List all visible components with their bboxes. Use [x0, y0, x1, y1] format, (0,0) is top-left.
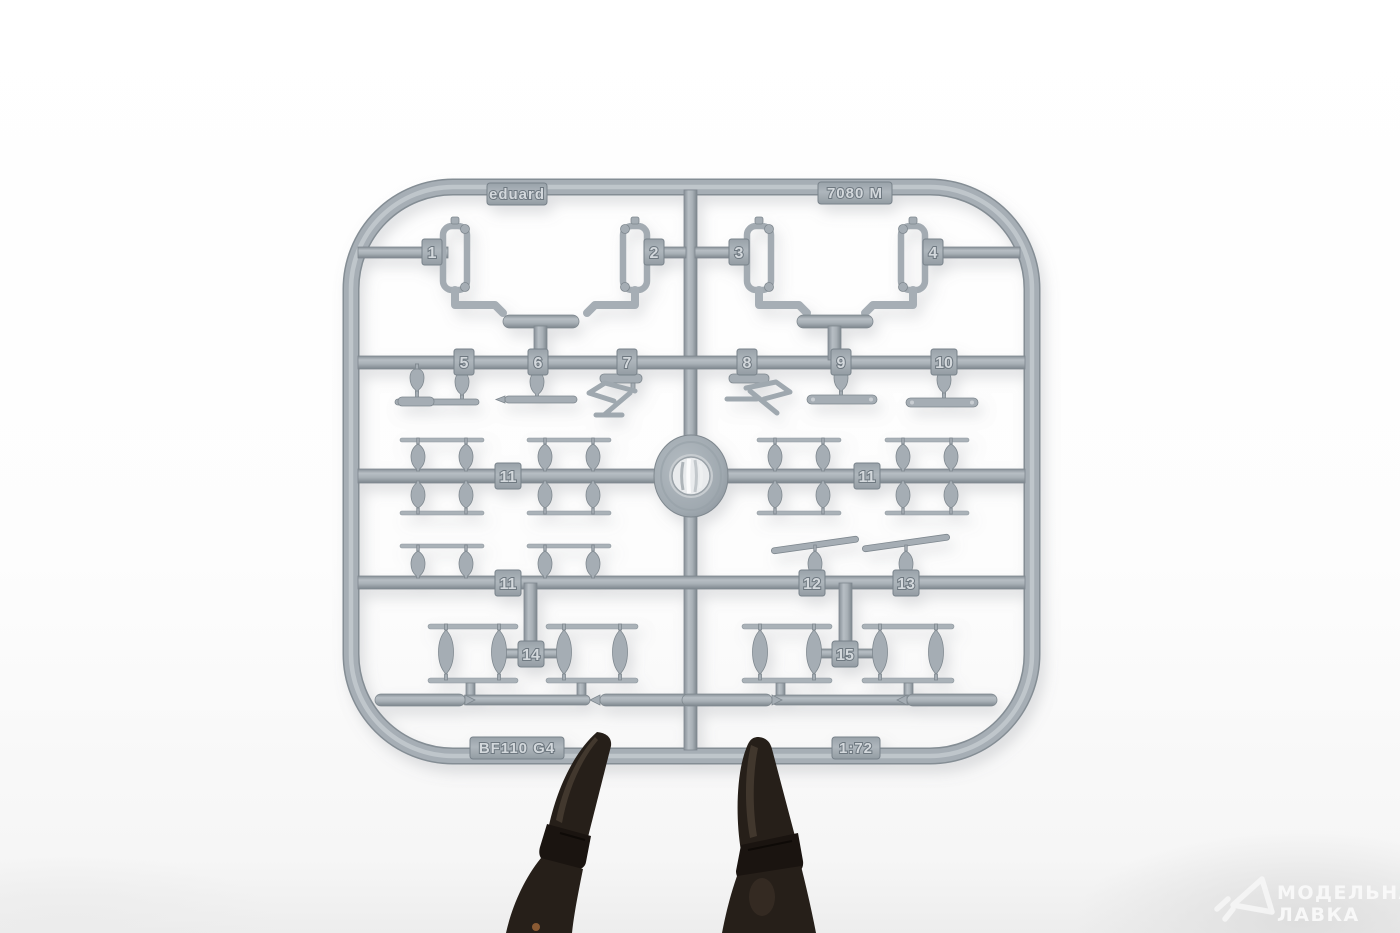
svg-text:11: 11: [500, 469, 517, 486]
watermark: МОДЕЛЬНАЯ ЛАВКА: [1217, 879, 1400, 926]
svg-text:13: 13: [897, 576, 915, 593]
sprue: eduard 7080 M BF110 G4 1:72: [351, 182, 1032, 759]
part-number-tab-6: 6: [528, 349, 548, 375]
part-number-tab-14: 14: [518, 641, 544, 667]
svg-text:5: 5: [460, 355, 469, 372]
svg-text:12: 12: [803, 576, 821, 593]
part-number-tab-12: 12: [799, 570, 825, 596]
svg-text:1: 1: [428, 245, 437, 262]
svg-text:9: 9: [837, 355, 846, 372]
part-number-tab-11b: 11: [854, 463, 880, 489]
svg-text:3: 3: [735, 245, 744, 262]
part-4-mast: [899, 217, 926, 292]
svg-text:8: 8: [743, 355, 752, 372]
part-number-tab-5: 5: [454, 349, 474, 375]
watermark-line1: МОДЕЛЬНАЯ: [1277, 882, 1400, 904]
svg-text:11: 11: [859, 469, 876, 486]
brand-tab-eduard: eduard: [487, 183, 547, 205]
sprue-photo: eduard 7080 M BF110 G4 1:72: [0, 0, 1400, 933]
photo-stage: eduard 7080 M BF110 G4 1:72: [0, 0, 1400, 933]
aircraft-label: BF110 G4: [479, 740, 555, 757]
clip-right: [722, 737, 816, 933]
svg-text:10: 10: [935, 355, 953, 372]
svg-text:15: 15: [836, 647, 854, 664]
aircraft-tab: BF110 G4: [470, 737, 564, 759]
part-2-mast: [621, 217, 648, 292]
sprue-hub: [654, 435, 728, 517]
paper-plane-triangle-icon: [1217, 879, 1272, 919]
part-number-tab-8: 8: [737, 349, 757, 375]
part-7: [589, 373, 642, 415]
part-number-tab-15: 15: [832, 641, 858, 667]
clip-left-body: [506, 858, 583, 933]
scale-label: 1:72: [839, 740, 873, 757]
part-number-tab-10: 10: [931, 349, 957, 375]
part-number-tab-2: 2: [644, 239, 664, 265]
part-3-mast: [747, 217, 774, 292]
watermark-line2: ЛАВКА: [1277, 904, 1360, 926]
rail-4: [358, 576, 1025, 589]
clip-right-sheen: [749, 878, 775, 916]
clip-left-rivet: [532, 923, 540, 931]
part-number-tab-9: 9: [831, 349, 851, 375]
svg-text:2: 2: [650, 245, 659, 262]
part-number-tab-3: 3: [729, 239, 749, 265]
kit-code-tab: 7080 M: [818, 182, 892, 204]
part-number-tab-11a: 11: [495, 463, 521, 489]
part-number-tab-7: 7: [617, 349, 637, 375]
scale-tab: 1:72: [832, 737, 880, 759]
row-4-parts: [400, 534, 950, 578]
svg-text:7: 7: [623, 355, 632, 372]
svg-text:4: 4: [929, 245, 938, 262]
brand-label: eduard: [489, 186, 545, 203]
part-number-tab-11c: 11: [495, 570, 521, 596]
part-number-tab-13: 13: [893, 570, 919, 596]
part-8: [727, 373, 790, 413]
part-number-tab-4: 4: [923, 239, 943, 265]
svg-text:14: 14: [522, 647, 540, 664]
kit-code-label: 7080 M: [827, 185, 883, 202]
svg-text:6: 6: [534, 355, 543, 372]
svg-text:11: 11: [500, 576, 517, 593]
part-number-tab-1: 1: [422, 239, 442, 265]
